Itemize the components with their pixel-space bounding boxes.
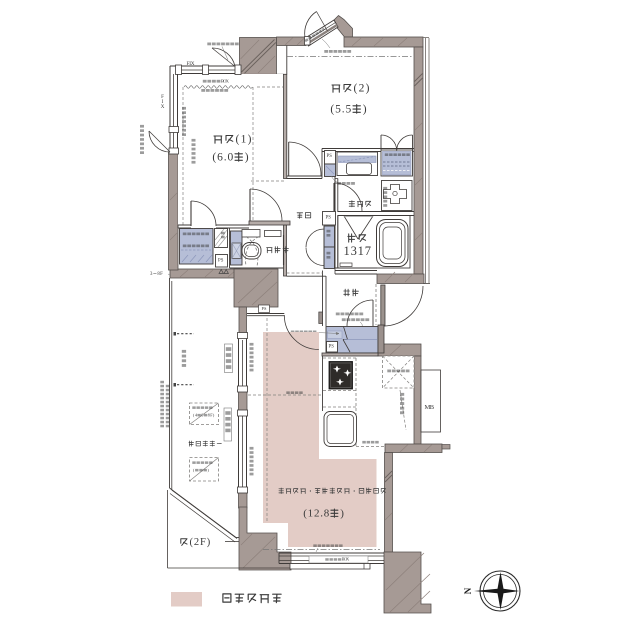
svg-text:X: X — [161, 105, 165, 110]
svg-text:): ) — [363, 103, 367, 115]
svg-text:PS: PS — [329, 344, 335, 349]
svg-text:1317: 1317 — [344, 244, 372, 258]
svg-text:8F: 8F — [157, 272, 163, 277]
svg-text:(2): (2) — [354, 82, 370, 94]
svg-text:(1): (1) — [236, 133, 252, 145]
svg-text:BOX: BOX — [342, 557, 349, 562]
svg-text:(2F): (2F) — [190, 537, 211, 548]
svg-text:PS: PS — [218, 258, 224, 263]
svg-text:PS: PS — [327, 154, 333, 159]
svg-text:(12.8: (12.8 — [303, 508, 330, 520]
svg-text:8F): 8F) — [208, 412, 215, 417]
svg-text:MB: MB — [425, 404, 435, 411]
svg-text:(6.0: (6.0 — [212, 151, 233, 163]
svg-text:N: N — [463, 587, 473, 594]
svg-text:PS: PS — [326, 215, 332, 220]
svg-text:FIX: FIX — [187, 61, 195, 67]
svg-text:(5.5: (5.5 — [330, 103, 351, 115]
svg-text:): ) — [245, 151, 249, 163]
svg-text:BOX: BOX — [221, 79, 230, 84]
svg-text:PS: PS — [262, 306, 268, 311]
svg-text:): ) — [340, 508, 344, 520]
svg-text:6: 6 — [201, 412, 203, 417]
